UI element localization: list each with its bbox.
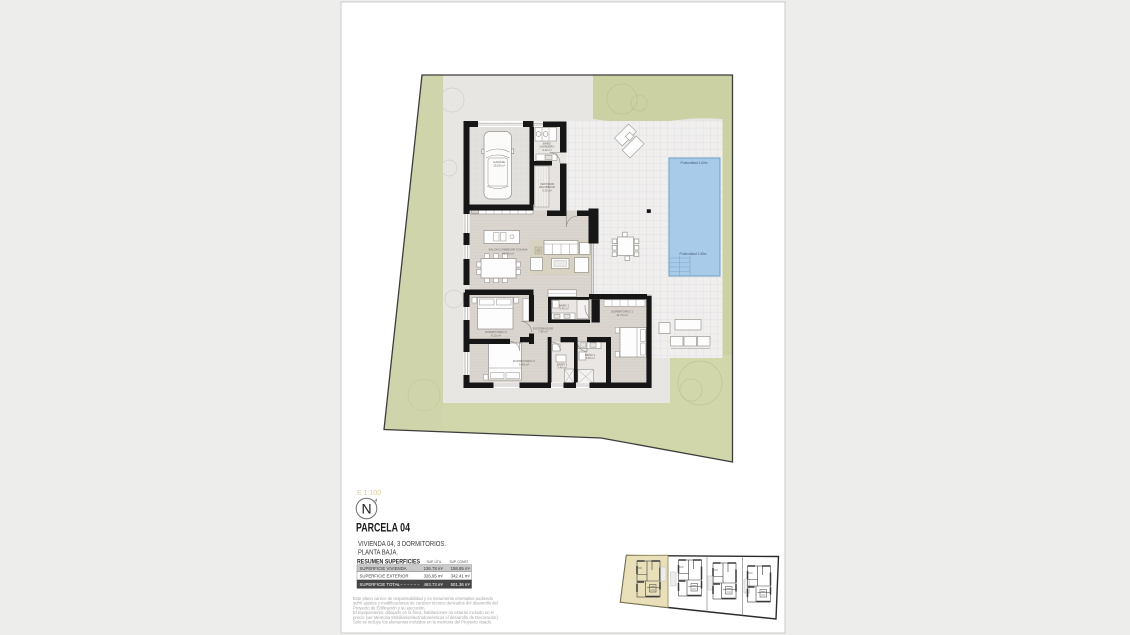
svg-text:PARCELA 04: PARCELA 04: [356, 521, 410, 535]
svg-text:SUPERFICIE EXTERIOR: SUPERFICIE EXTERIOR: [360, 573, 409, 578]
svg-text:3.10 m²: 3.10 m²: [542, 148, 552, 152]
svg-text:E 1:100: E 1:100: [357, 490, 381, 497]
svg-text:VIVIENDA 04, 3 DORMITORIOS.: VIVIENDA 04, 3 DORMITORIOS.: [358, 541, 446, 548]
svg-text:326.95 m²: 326.95 m²: [424, 573, 444, 578]
svg-text:Solo se incluye los elementos: Solo se incluye los elementos incluidos …: [353, 620, 492, 625]
svg-text:136.78 m²: 136.78 m²: [424, 566, 444, 571]
svg-text:3.40 m²: 3.40 m²: [557, 366, 567, 370]
svg-text:SUP. ÚTIL: SUP. ÚTIL: [427, 559, 442, 564]
svg-text:7.85 m²: 7.85 m²: [538, 330, 548, 334]
svg-text:SUP. CONST: SUP. CONST: [450, 560, 470, 564]
svg-text:41.05 m²: 41.05 m²: [502, 251, 514, 255]
svg-text:15.60 m²: 15.60 m²: [493, 164, 505, 168]
svg-text:11.70 m²: 11.70 m²: [616, 313, 628, 317]
svg-text:9.15 m²: 9.15 m²: [491, 334, 501, 338]
svg-text:SUPERFICIE VIVIENDA: SUPERFICIE VIVIENDA: [360, 566, 407, 571]
svg-text:3.45 m²: 3.45 m²: [559, 307, 569, 311]
svg-text:5.30 m²: 5.30 m²: [542, 188, 552, 192]
svg-text:342.41 m²: 342.41 m²: [451, 573, 471, 578]
svg-text:Profundidad 1.45m: Profundidad 1.45m: [680, 252, 707, 256]
svg-text:463.73 m²: 463.73 m²: [424, 582, 444, 587]
svg-text:5.40 m²: 5.40 m²: [585, 356, 595, 360]
svg-text:158.95 m²: 158.95 m²: [451, 566, 471, 571]
svg-text:PLANTA BAJA.: PLANTA BAJA.: [358, 550, 398, 557]
svg-text:Profundidad 1.60m: Profundidad 1.60m: [681, 161, 708, 165]
svg-text:SUPERFICIE TOTAL: SUPERFICIE TOTAL: [360, 582, 401, 587]
svg-text:N: N: [361, 501, 371, 517]
svg-text:501.36 m²: 501.36 m²: [451, 582, 471, 587]
svg-text:9.95 m²: 9.95 m²: [519, 363, 529, 367]
